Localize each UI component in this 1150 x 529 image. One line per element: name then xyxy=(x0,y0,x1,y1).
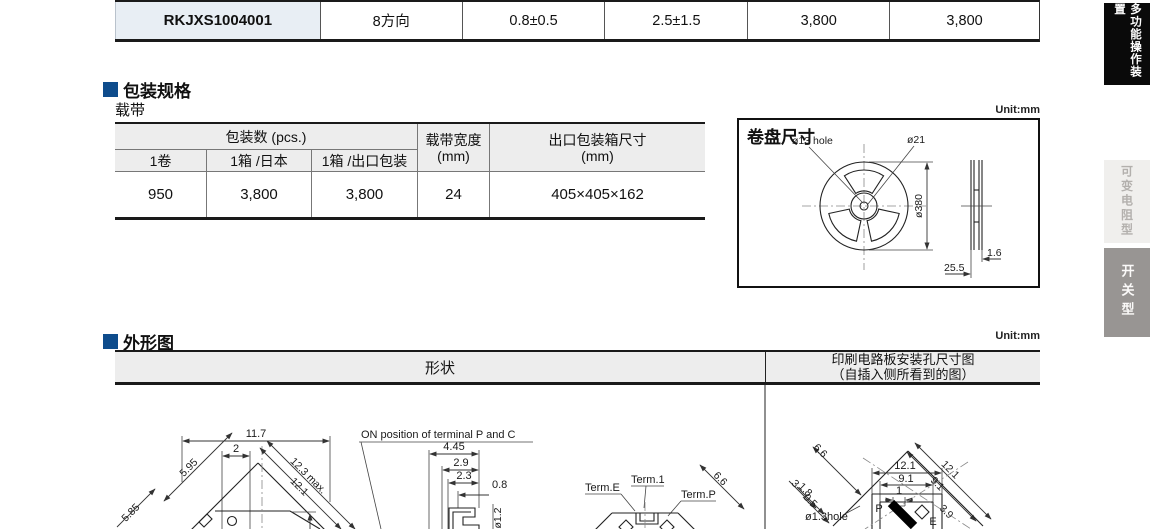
pcb-dim-6-6: 6.6 xyxy=(811,441,830,460)
reel-hub-label: ø21 xyxy=(907,134,925,146)
dim-2-3: 2.3 xyxy=(456,470,471,482)
catalog-page: RKJXS1004001 8方向 0.8±0.5 2.5±1.5 3,800 3… xyxy=(0,0,1150,529)
dim-2: 2 xyxy=(233,443,239,455)
col-box-japan-header: 1箱 /日本 xyxy=(207,150,312,172)
reel-dimensions-panel: 卷盘尺寸 ø13 hole ø21 xyxy=(737,118,1040,288)
unit-label-outline: Unit:mm xyxy=(978,330,1040,342)
dim-5-95: 5.95 xyxy=(177,456,200,479)
val-roll: 950 xyxy=(115,172,207,217)
val-box-japan: 3,800 xyxy=(207,172,312,217)
pcb-dim-9-1-d: 9.1 xyxy=(928,474,947,493)
tape-width-header: 载带宽度 (mm) xyxy=(418,124,490,172)
shape-column-header: 形状 xyxy=(115,352,765,382)
reel-hole-label: ø13 hole xyxy=(792,135,833,147)
outline-header-table: 形状 印刷电路板安装孔尺寸图 （自插入侧所看到的图） xyxy=(115,350,1040,385)
carrier-tape-subtitle: 载带 xyxy=(115,99,145,120)
pcb-dim-3-9: 3.9 xyxy=(937,502,956,521)
outline-drawing: 11.7 2 5.95 5.85 12.3 max. xyxy=(115,384,1040,529)
dim-4-45: 4.45 xyxy=(443,441,464,453)
dim-0-8: 0.8 xyxy=(492,479,507,491)
col-box-export-header: 1箱 /出口包装 xyxy=(312,150,418,172)
packaging-table: 包装数 (pcs.) 载带宽度 (mm) 出口包装箱尺寸 (mm) 1卷 1箱 … xyxy=(115,122,705,220)
col-roll-header: 1卷 xyxy=(115,150,207,172)
dim-6-6-term: 6.6 xyxy=(711,469,730,488)
unit-label-reel: Unit:mm xyxy=(978,104,1040,116)
pcb-dim-9-1-h: 9.1 xyxy=(898,473,913,485)
outline-drawings-area: 11.7 2 5.95 5.85 12.3 max. xyxy=(115,384,1040,529)
pcb-hole-view: 6.6 3 1.8 0.5 ø1.3hole 12.1 9.1 12.1 xyxy=(789,441,991,529)
reel-width-label: 25.5 xyxy=(944,262,965,274)
val-export-box: 405×405×162 xyxy=(490,172,705,217)
reel-drawing: ø13 hole ø21 ø380 1.6 25.5 xyxy=(739,120,1038,286)
reel-outer-dia-label: ø380 xyxy=(913,194,925,218)
val-box-export: 3,800 xyxy=(312,172,418,217)
part-number-table: RKJXS1004001 8方向 0.8±0.5 2.5±1.5 3,800 3… xyxy=(115,0,1040,42)
term-e-label: Term.E xyxy=(585,482,620,494)
shape-front-view: 11.7 2 5.95 5.85 12.3 max. xyxy=(117,428,374,529)
pcb-dim-1: 1 xyxy=(896,485,902,497)
packaging-qty-group-header: 包装数 (pcs.) xyxy=(115,124,418,150)
sidebar-tab-multifunction[interactable]: 多功能操作装置 xyxy=(1104,3,1150,85)
spec-cell-1: 0.8±0.5 xyxy=(462,2,605,39)
on-position-label: ON position of terminal P and C xyxy=(361,429,516,441)
sidebar-tab-switch[interactable]: 开关型 xyxy=(1104,248,1150,337)
shape-side-view: ON position of terminal P and C 4.45 2.9… xyxy=(359,429,533,529)
qty-cell-1: 3,800 xyxy=(747,2,889,39)
sidebar-tab-variable-resistor[interactable]: 可变电阻型 xyxy=(1104,160,1150,243)
qty-cell-2: 3,800 xyxy=(889,2,1039,39)
part-number-cell: RKJXS1004001 xyxy=(115,2,320,39)
dim-11-7: 11.7 xyxy=(246,428,267,440)
dim-phi-1-2: ø1.2 xyxy=(492,507,504,528)
dim-2-9: 2.9 xyxy=(453,457,468,469)
spec-cell-2: 2.5±1.5 xyxy=(604,2,747,39)
section-bullet-icon xyxy=(103,334,118,349)
export-box-header: 出口包装箱尺寸 (mm) xyxy=(490,124,705,172)
section-bullet-icon xyxy=(103,82,118,97)
term-1-label: Term.1 xyxy=(631,474,665,486)
term-p-label: Term.P xyxy=(681,489,716,501)
terminal-view: Term.E Term.1 Term.P 6.6 xyxy=(570,465,744,529)
direction-cell: 8方向 xyxy=(320,2,462,39)
reel-thickness-label: 1.6 xyxy=(987,247,1002,259)
pcb-column-header: 印刷电路板安装孔尺寸图 （自插入侧所看到的图） xyxy=(765,352,1040,382)
pcb-label-p: P xyxy=(875,503,882,515)
val-tape-width: 24 xyxy=(418,172,490,217)
